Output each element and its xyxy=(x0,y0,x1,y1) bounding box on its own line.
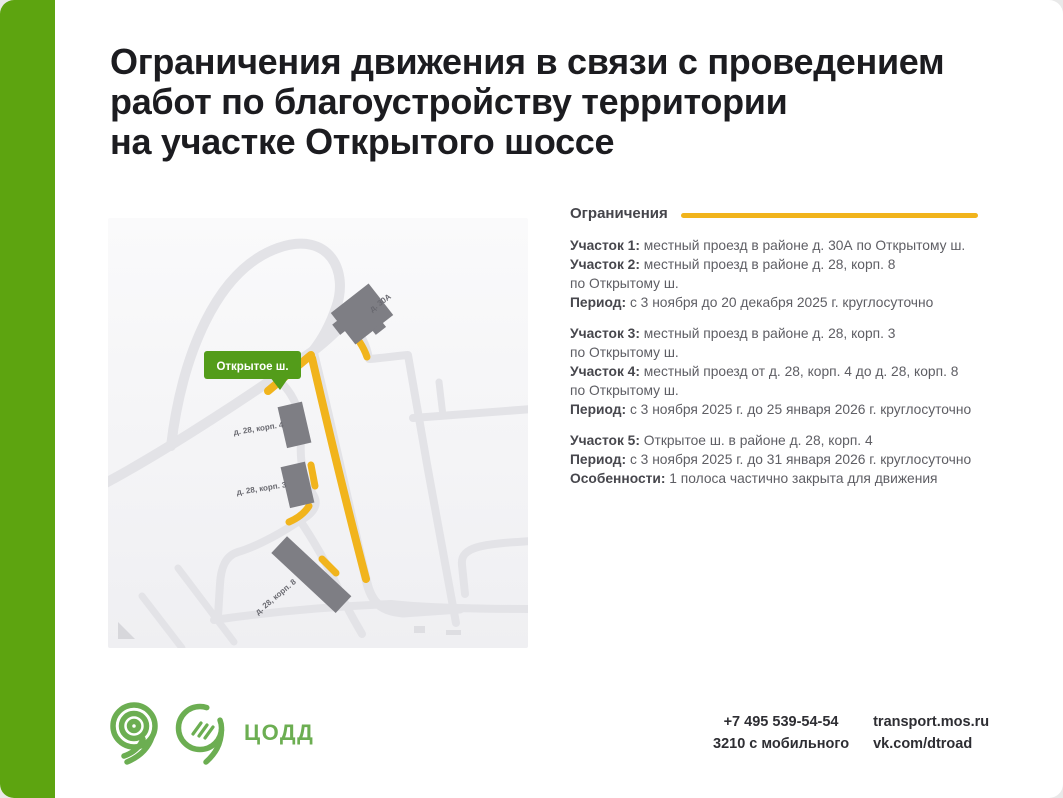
restriction-item: Период: с 3 ноября 2025 г. до 31 января … xyxy=(570,450,978,469)
item-label: Период: xyxy=(570,295,626,310)
item-text: 1 полоса частично закрыта для движения xyxy=(669,471,937,486)
item-label: Период: xyxy=(570,452,626,467)
item-text: Открытое ш. в районе д. 28, корп. 4 xyxy=(644,433,873,448)
restriction-item: Участок 1: местный проезд в районе д. 30… xyxy=(570,236,978,255)
org-name: ЦОДД xyxy=(244,720,314,746)
item-text: с 3 ноября 2025 г. до 31 января 2026 г. … xyxy=(630,452,971,467)
map-edge-block xyxy=(446,630,461,635)
item-text: с 3 ноября 2025 г. до 25 января 2026 г. … xyxy=(630,402,971,417)
item-label: Участок 1: xyxy=(570,238,640,253)
website-link: transport.mos.ru xyxy=(873,711,989,733)
item-label: Участок 2: xyxy=(570,257,640,272)
social-link: vk.com/dtroad xyxy=(873,733,989,755)
restriction-group-1: Участок 1: местный проезд в районе д. 30… xyxy=(570,236,978,312)
restriction-item: Участок 2: местный проезд в районе д. 28… xyxy=(570,255,978,293)
phone-mobile: 3210 с мобильного xyxy=(713,733,849,755)
brand-accent-bar xyxy=(0,0,55,798)
restrictions-header-row: Ограничения xyxy=(570,205,978,223)
page-title: Ограничения движения в связи с проведени… xyxy=(110,42,944,162)
restriction-item: Период: с 3 ноября 2025 г. до 25 января … xyxy=(570,400,978,419)
restriction-group-3: Участок 5: Открытое ш. в районе д. 28, к… xyxy=(570,431,978,488)
restriction-item: Участок 5: Открытое ш. в районе д. 28, к… xyxy=(570,431,978,450)
restriction-item: Участок 4: местный проезд от д. 28, корп… xyxy=(570,362,978,400)
item-label: Участок 4: xyxy=(570,364,640,379)
restriction-group-2: Участок 3: местный проезд в районе д. 28… xyxy=(570,324,978,419)
legend-accent-line xyxy=(681,213,978,218)
restrictions-header: Ограничения xyxy=(570,205,668,223)
map-panel: д. 30А д. 28, корп. 4 д. 28, корп. 3 д. … xyxy=(108,218,528,648)
links-block: transport.mos.ru vk.com/dtroad xyxy=(873,711,989,755)
moscow-transport-logo xyxy=(107,701,165,765)
title-line: на участке Открытого шоссе xyxy=(110,122,944,162)
title-line: работ по благоустройству территории xyxy=(110,82,944,122)
road-name-badge-label: Открытое ш. xyxy=(216,361,288,373)
phone-number: +7 495 539-54-54 xyxy=(713,711,849,733)
restriction-item: Участок 3: местный проезд в районе д. 28… xyxy=(570,324,978,362)
item-text: с 3 ноября до 20 декабря 2025 г. круглос… xyxy=(630,295,933,310)
map-edge-block xyxy=(414,626,425,633)
phone-block: +7 495 539-54-54 3210 с мобильного xyxy=(713,711,849,755)
item-text: местный проезд в районе д. 30А по Открыт… xyxy=(644,238,965,253)
item-label: Особенности: xyxy=(570,471,665,486)
item-label: Участок 5: xyxy=(570,433,640,448)
codd-logo xyxy=(172,701,230,765)
footer-brand: ЦОДД xyxy=(107,701,314,765)
item-label: Период: xyxy=(570,402,626,417)
title-line: Ограничения движения в связи с проведени… xyxy=(110,42,944,82)
restriction-item: Период: с 3 ноября до 20 декабря 2025 г.… xyxy=(570,293,978,312)
restrictions-panel: Ограничения Участок 1: местный проезд в … xyxy=(570,205,978,500)
item-label: Участок 3: xyxy=(570,326,640,341)
infographic-root: Ограничения движения в связи с проведени… xyxy=(0,0,1063,798)
restriction-item: Особенности: 1 полоса частично закрыта д… xyxy=(570,469,978,488)
footer-contacts: +7 495 539-54-54 3210 с мобильного trans… xyxy=(713,711,989,755)
schematic-map: д. 30А д. 28, корп. 4 д. 28, корп. 3 д. … xyxy=(108,218,528,648)
